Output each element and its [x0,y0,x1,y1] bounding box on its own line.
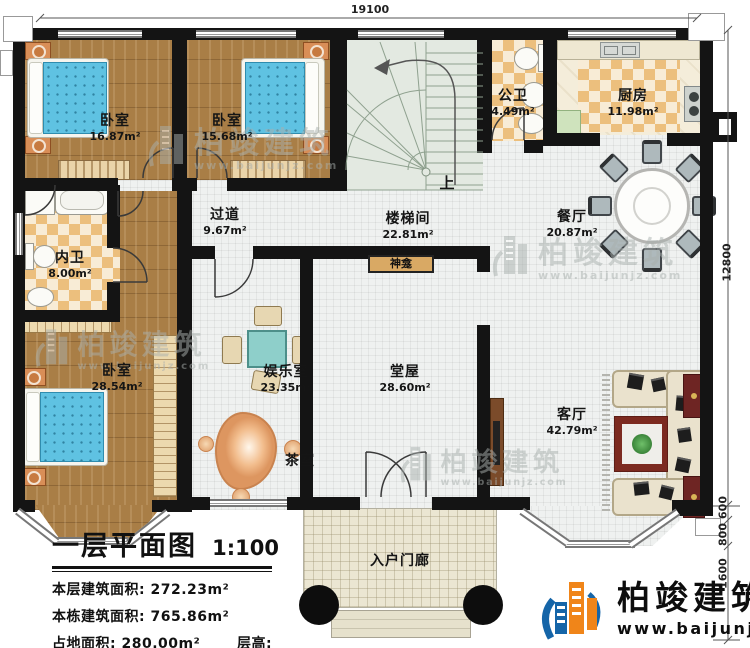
dimension-top: 19100 [340,3,400,16]
brand-name: 柏竣建筑 [617,581,750,614]
plan-scale: 1:100 [212,536,279,560]
area-row-site: 占地面积: 280.00m² 层高: 3.6m [52,633,312,648]
axis-marker [688,13,725,41]
dimension-right-depth: 12800 [721,243,734,283]
wall [152,500,192,512]
bed-pillow [305,62,319,134]
wall [477,28,492,153]
floor-stairwell [347,40,483,190]
window [568,30,676,38]
wall [330,40,347,191]
room-label-kitchen: 厨房 11.98m² [607,87,658,119]
wardrobe [153,335,177,497]
wall [477,246,490,272]
wall [107,282,120,312]
wall [432,497,530,510]
window [565,540,635,548]
dining-chair [642,248,662,272]
title-block: 一层平面图 1:100 本层建筑面积: 272.23m² 本栋建筑面积: 765… [52,524,312,648]
wall [524,140,543,153]
wall [13,28,25,512]
room-label-bedroom2: 卧室 15.68m² [201,112,252,144]
wall [107,185,120,248]
cushion [633,481,649,495]
rug-fringe [602,374,610,514]
wall [543,133,600,146]
room-label-private-bath: 内卫 8.00m² [48,249,91,281]
stairs-up-label: 上 [439,174,454,194]
bed-mattress [245,62,305,134]
wall [13,310,120,322]
window [210,499,287,507]
brand-block: 柏竣建筑 www.baijunjz.com [541,576,750,642]
room-label-dining: 餐厅 20.87m² [546,208,597,240]
area-row-floor: 本层建筑面积: 272.23m² [52,579,312,599]
chair [254,306,282,326]
wall [13,178,118,191]
wall [177,178,192,510]
tea-stone [198,436,214,452]
room-label-bedroom1: 卧室 16.87m² [89,112,140,144]
porch-steps [331,610,471,638]
nightstand [25,136,51,154]
dining-table [614,168,690,244]
window [196,30,296,38]
cushion [677,427,692,443]
wall [187,246,215,259]
axis-marker [3,16,33,42]
bed-pillow [29,62,43,134]
room-label-hallway: 过道 9.67m² [203,206,246,238]
dresser [230,160,306,180]
room-label-porch: 入户门廊 [370,552,430,570]
dining-chair [642,140,662,164]
wall [227,178,347,191]
axis-marker [0,50,13,76]
area-row-building: 本栋建筑面积: 765.86m² [52,606,312,626]
shrine-box: 神龛 [368,255,434,273]
porch-column [463,585,503,625]
wall-flue [713,112,737,142]
chair [222,336,242,364]
cushion [627,373,644,390]
kitchen-sink [600,42,640,58]
room-label-stairwell: 楼梯间 22.81m² [382,210,433,242]
site-area: 占地面积: 280.00m² [52,636,200,648]
room-label-living: 客厅 42.79m² [546,406,597,438]
floorplan-canvas: 神龛 [0,0,750,648]
window [15,213,23,255]
brand-logo-icon [541,576,607,642]
shrine-label: 神龛 [390,257,412,270]
window [358,30,444,38]
window [58,30,142,38]
title-underline [52,566,272,569]
living-rug [614,416,668,472]
room-label-hall: 堂屋 28.60m² [379,363,430,395]
plan-title: 一层平面图 [52,524,197,563]
wall [287,497,313,510]
bed-mattress [40,392,104,462]
nightstand [303,136,329,154]
cushion [675,457,692,474]
dimension-right-800: 800 [717,515,730,555]
dresser [58,160,130,180]
cushion [651,377,666,392]
wall [172,40,187,191]
room-label-bedroom3: 卧室 28.54m² [91,362,142,394]
wall [253,246,477,259]
wall [477,140,492,153]
bed-pillow [26,392,40,462]
wall [543,28,557,146]
wall [700,28,713,506]
wall [667,133,713,146]
room-label-entertainment: 娱乐室 23.35m² [260,363,311,395]
title-underline-thin [52,571,272,572]
room-label-public-bath: 公卫 4.49m² [491,87,534,119]
room-label-tea: 茶室 [285,452,315,470]
brand-url: www.baijunjz.com [617,619,750,638]
tv-cabinet [490,398,504,486]
sink [27,287,54,307]
toilet-bowl [514,47,539,70]
wall [477,325,490,510]
